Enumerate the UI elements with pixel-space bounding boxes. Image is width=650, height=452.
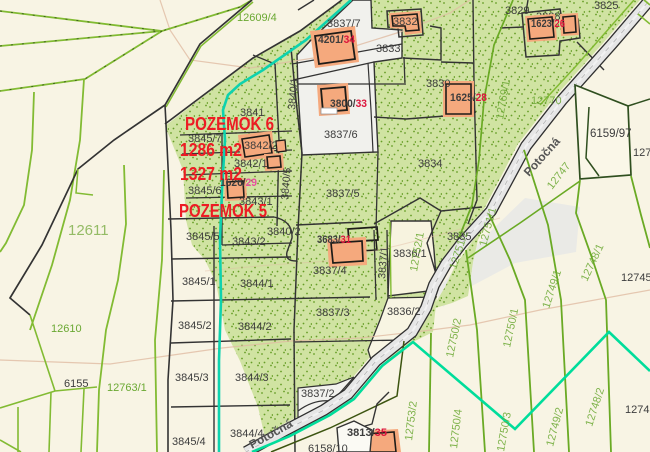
svg-text:1625/28: 1625/28 bbox=[450, 92, 487, 104]
svg-text:3845/5: 3845/5 bbox=[186, 231, 220, 243]
svg-text:6155: 6155 bbox=[64, 378, 88, 390]
svg-text:3844/1: 3844/1 bbox=[240, 278, 274, 290]
svg-text:12745/: 12745/ bbox=[633, 147, 650, 159]
svg-text:12770: 12770 bbox=[531, 95, 562, 107]
svg-text:4201/34: 4201/34 bbox=[318, 34, 356, 46]
svg-text:3683/31: 3683/31 bbox=[317, 234, 351, 246]
svg-text:3845/1: 3845/1 bbox=[182, 276, 216, 288]
svg-text:3845/4: 3845/4 bbox=[172, 436, 206, 448]
svg-text:3837/3: 3837/3 bbox=[316, 307, 350, 319]
svg-text:3837/6: 3837/6 bbox=[324, 129, 358, 141]
svg-text:1623/26: 1623/26 bbox=[531, 18, 565, 30]
svg-text:6158/10: 6158/10 bbox=[308, 443, 348, 452]
svg-text:POZEMOK 6: POZEMOK 6 bbox=[185, 114, 274, 134]
svg-text:3836/2: 3836/2 bbox=[387, 306, 421, 318]
svg-text:3834: 3834 bbox=[418, 158, 442, 170]
svg-text:12611: 12611 bbox=[68, 222, 109, 239]
svg-text:6159/97: 6159/97 bbox=[590, 128, 632, 140]
svg-text:3845/3: 3845/3 bbox=[175, 372, 209, 384]
svg-text:3837/4: 3837/4 bbox=[313, 265, 347, 277]
svg-text:1327 m2: 1327 m2 bbox=[180, 164, 242, 184]
svg-text:3837/5: 3837/5 bbox=[326, 188, 360, 200]
svg-text:3845/6: 3845/6 bbox=[188, 185, 222, 197]
svg-text:3832: 3832 bbox=[393, 16, 417, 28]
svg-text:12609/4: 12609/4 bbox=[237, 12, 277, 24]
svg-text:12763/1: 12763/1 bbox=[107, 382, 147, 394]
svg-text:3837/2: 3837/2 bbox=[301, 388, 335, 400]
svg-text:3829: 3829 bbox=[505, 5, 529, 17]
svg-text:3825: 3825 bbox=[594, 0, 618, 12]
svg-text:3813/35: 3813/35 bbox=[347, 427, 387, 439]
svg-text:12745: 12745 bbox=[625, 404, 650, 416]
svg-text:3800/33: 3800/33 bbox=[330, 98, 367, 110]
svg-text:3830: 3830 bbox=[426, 78, 450, 90]
svg-text:3843/2: 3843/2 bbox=[232, 236, 266, 248]
svg-text:3840/2: 3840/2 bbox=[267, 226, 301, 238]
svg-text:POZEMOK 5: POZEMOK 5 bbox=[179, 201, 267, 221]
svg-text:12610: 12610 bbox=[51, 323, 82, 335]
svg-text:3837/7: 3837/7 bbox=[327, 18, 361, 30]
svg-text:3845/2: 3845/2 bbox=[178, 320, 212, 332]
svg-text:12745/3: 12745/3 bbox=[621, 272, 650, 284]
svg-text:3844/2: 3844/2 bbox=[238, 321, 272, 333]
svg-text:3833: 3833 bbox=[376, 43, 400, 55]
svg-text:1286 m2: 1286 m2 bbox=[180, 140, 242, 160]
svg-text:3842/2: 3842/2 bbox=[244, 140, 278, 152]
svg-text:3844/3: 3844/3 bbox=[235, 372, 269, 384]
